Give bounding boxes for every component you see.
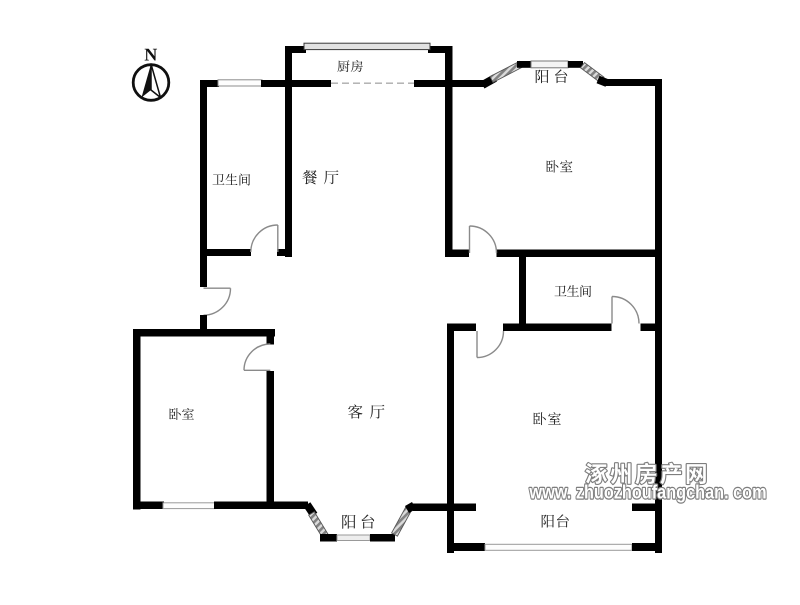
svg-text:www. zhuozhoufangchan. com: www. zhuozhoufangchan. com	[529, 481, 767, 503]
